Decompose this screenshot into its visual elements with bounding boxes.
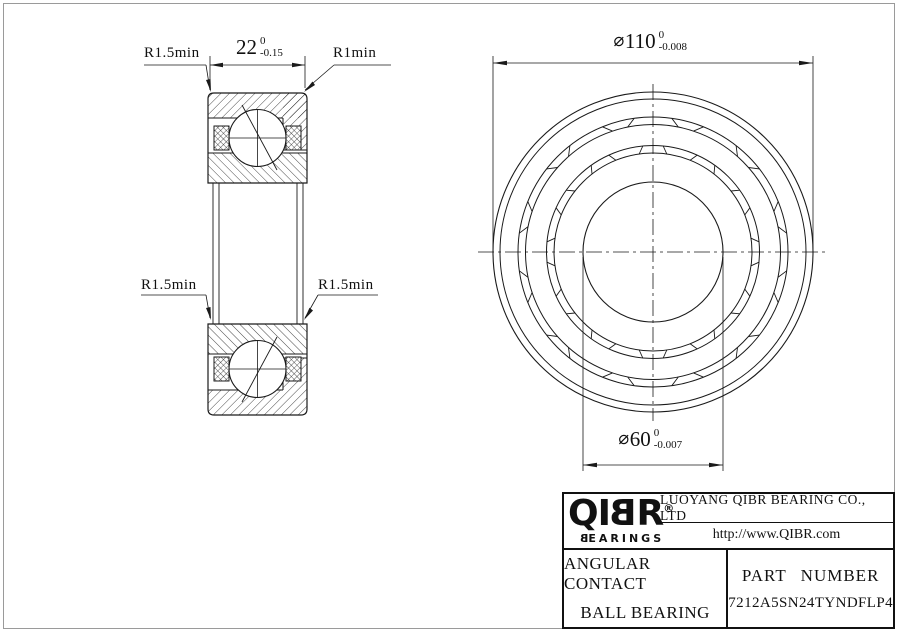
width-value: 22	[236, 37, 257, 58]
od-value: 110	[625, 31, 656, 52]
od-tol-lower: -0.008	[659, 41, 687, 53]
bore-tolerance: 0 -0.007	[654, 427, 682, 451]
width-dimension: 22 0 -0.15	[236, 37, 283, 59]
title-block-bottom-row: ANGULAR CONTACT BALL BEARING PART NUMBER…	[564, 548, 893, 627]
radius-label-bottom-left: R1.5min	[141, 277, 197, 294]
company-cell: LUOYANG QIBR BEARING CO., LTD http://www…	[660, 494, 893, 548]
part-number-cell: PART NUMBER 7212A5SN24TYNDFLP4	[726, 550, 893, 627]
product-name-line2: BALL BEARING	[580, 603, 710, 623]
radius-label-bottom-right: R1.5min	[318, 277, 374, 294]
drawing-sheet: R1.5min R1min R1.5min R1.5min 22 0 -0.15…	[0, 0, 900, 636]
product-name-line1: ANGULAR CONTACT	[564, 554, 726, 594]
brand-pre: QI	[568, 493, 610, 534]
brand-sub-rest: EARINGS	[588, 532, 664, 545]
company-name: LUOYANG QIBR BEARING CO., LTD	[660, 494, 893, 523]
outer-diameter-dimension: ⌀ 110 0 -0.008	[613, 31, 687, 53]
radius-label-top-left: R1.5min	[144, 45, 200, 62]
part-number-value: 7212A5SN24TYNDFLP4	[728, 595, 893, 612]
bore-tol-lower: -0.007	[654, 439, 682, 451]
brand-sub-mirrored-b: B	[577, 532, 588, 545]
width-tolerance: 0 -0.15	[260, 35, 283, 59]
radius-label-top-right: R1min	[333, 45, 376, 62]
title-block: QIBR® BEARINGS LUOYANG QIBR BEARING CO.,…	[562, 492, 895, 629]
diameter-symbol: ⌀	[618, 429, 629, 449]
front-view	[478, 56, 828, 471]
section-view	[141, 56, 391, 415]
company-website: http://www.QIBR.com	[660, 523, 893, 547]
od-tol-upper: 0	[659, 29, 687, 41]
bore-tol-upper: 0	[654, 427, 682, 439]
width-tol-lower: -0.15	[260, 47, 283, 59]
brand-mirrored-b: B	[610, 497, 636, 531]
width-tol-upper: 0	[260, 35, 283, 47]
part-number-label: PART NUMBER	[742, 566, 880, 586]
product-name-cell: ANGULAR CONTACT BALL BEARING	[564, 550, 726, 627]
bore-value: 60	[630, 429, 651, 450]
title-block-header-row: QIBR® BEARINGS LUOYANG QIBR BEARING CO.,…	[564, 494, 893, 548]
diameter-symbol: ⌀	[613, 31, 624, 51]
bore-diameter-dimension: ⌀ 60 0 -0.007	[618, 429, 682, 451]
od-tolerance: 0 -0.008	[659, 29, 687, 53]
